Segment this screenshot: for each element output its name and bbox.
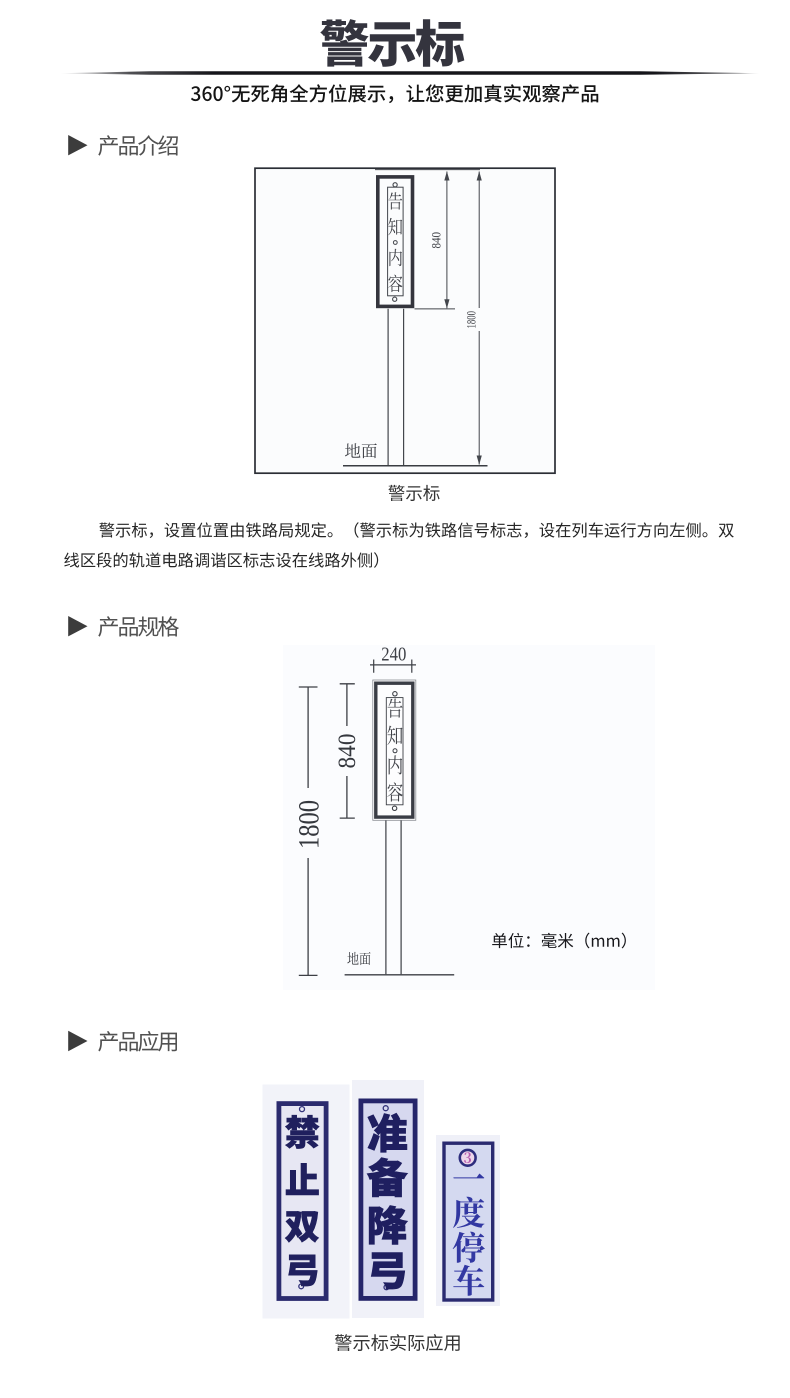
svg-text:840: 840	[429, 232, 444, 249]
svg-text:1800: 1800	[293, 800, 326, 849]
svg-text:240: 240	[381, 644, 406, 666]
svg-text:840: 840	[334, 734, 361, 769]
svg-text:1800: 1800	[464, 311, 479, 329]
